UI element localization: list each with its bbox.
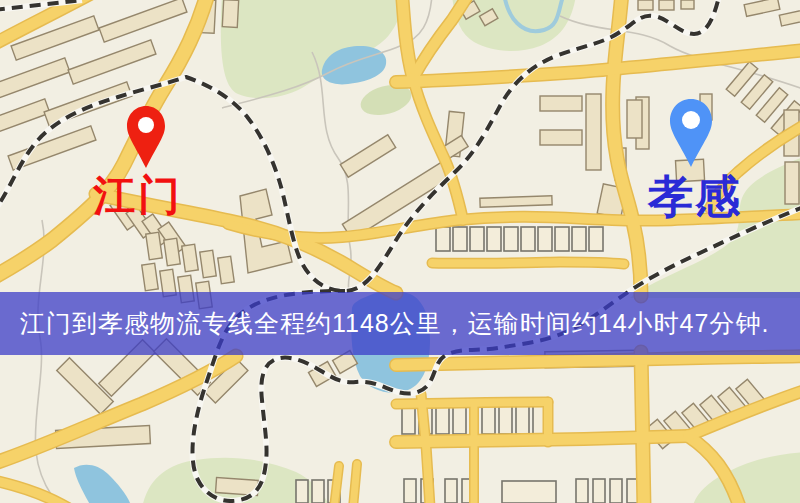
map-pin-icon bbox=[124, 104, 168, 170]
origin-pin bbox=[124, 104, 168, 170]
pin-hole bbox=[138, 117, 154, 133]
map-pin-icon bbox=[666, 97, 716, 169]
destination-pin bbox=[666, 97, 716, 169]
map-canvas bbox=[0, 0, 800, 503]
origin-label: 江门 bbox=[88, 175, 188, 217]
route-info-banner: 江门到孝感物流专线全程约1148公里，运输时间约14小时47分钟. bbox=[0, 292, 800, 355]
pin-shape bbox=[670, 99, 712, 167]
route-info-text: 江门到孝感物流专线全程约1148公里，运输时间约14小时47分钟. bbox=[0, 292, 800, 355]
pin-hole bbox=[682, 111, 700, 129]
pin-shape bbox=[127, 106, 165, 168]
map-image: 江门 孝感 江门到孝感物流专线全程约1148公里，运输时间约14小时47分钟. bbox=[0, 0, 800, 503]
destination-label: 孝感 bbox=[640, 174, 750, 219]
